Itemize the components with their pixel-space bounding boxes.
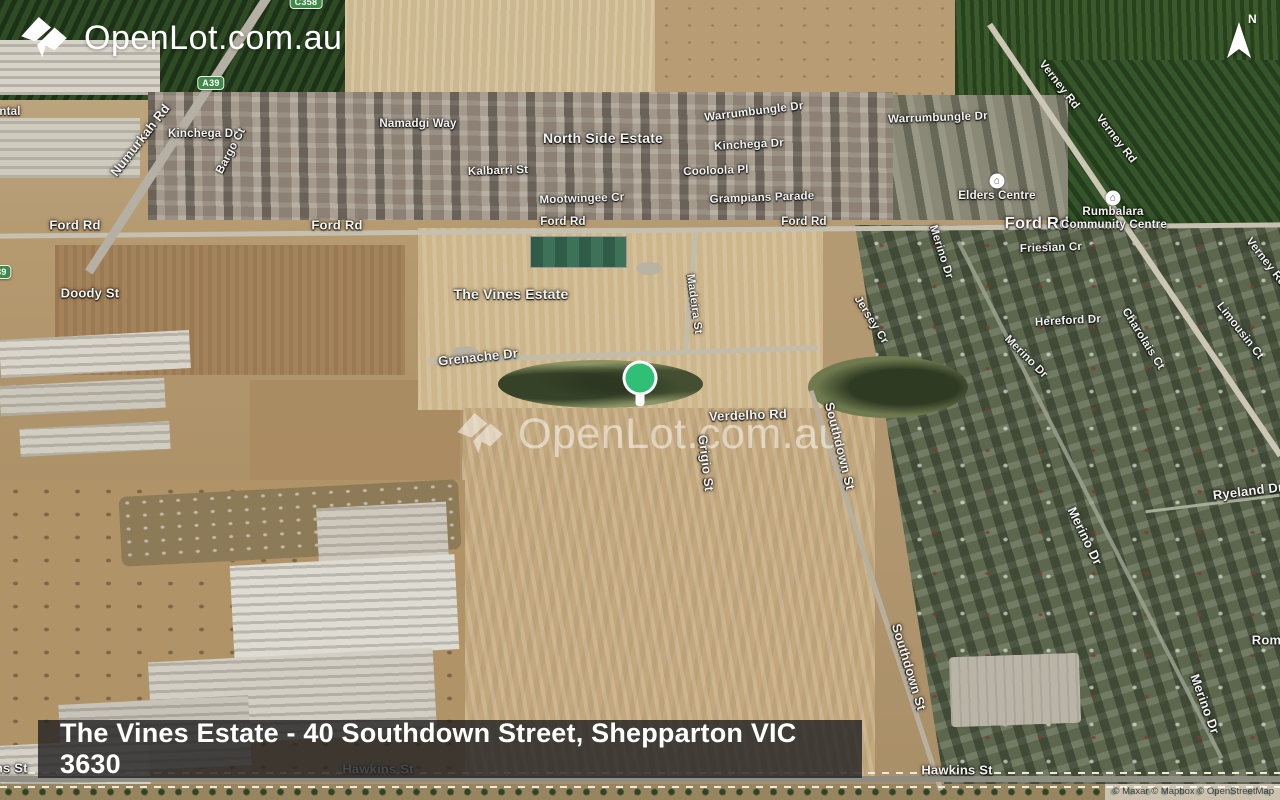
watermark-text: OpenLot.com.au <box>518 410 843 459</box>
tennis-courts <box>530 236 627 268</box>
address-title-bar: The Vines Estate - 40 Southdown Street, … <box>38 720 862 778</box>
map-label: Verdelho Rd <box>709 406 788 424</box>
map-label: Ford Rd <box>781 216 826 228</box>
openlot-logo-text: OpenLot.com.au <box>84 19 342 58</box>
tree-row <box>0 786 1280 800</box>
building-icon: ⌂ <box>990 174 1005 189</box>
map-label: Community Centre <box>1061 219 1167 231</box>
map-label: Hawkins St <box>0 761 28 776</box>
openlot-logo-icon <box>452 406 508 462</box>
location-pin[interactable] <box>618 356 662 410</box>
map-label: Elders Centre <box>958 190 1035 202</box>
address-title-text: The Vines Estate - 40 Southdown Street, … <box>60 718 862 780</box>
map-label: ntal <box>0 106 21 118</box>
map-label: The Vines Estate <box>454 286 569 302</box>
cul-de-sac <box>636 262 662 275</box>
carpark <box>949 653 1081 727</box>
map-label: Ford Rd <box>49 218 100 233</box>
map-label: Namadgi Way <box>379 118 456 130</box>
map-label: North Side Estate <box>543 130 663 146</box>
north-compass[interactable]: N <box>1222 12 1268 66</box>
map-label: Kalbarri St <box>468 164 529 178</box>
road-shield: A39 <box>0 265 12 279</box>
map-label: Kinchega Dr <box>168 128 238 140</box>
map-label: Ford Rd <box>540 216 585 228</box>
field-area <box>655 0 955 105</box>
map-label: Cooloola Pl <box>683 164 749 178</box>
pond <box>498 360 703 408</box>
road-dashes <box>0 786 1280 788</box>
openlot-logo-icon <box>16 10 72 66</box>
map-label: Rumbalara <box>1082 206 1143 218</box>
building-roof <box>230 554 460 661</box>
map-label: Ford Rd <box>1005 215 1070 234</box>
road-shield: C358 <box>290 0 323 9</box>
field-area <box>345 0 655 98</box>
map-label: Ford Rd <box>311 218 362 233</box>
north-arrow-icon <box>1224 20 1254 62</box>
map-label: Romney <box>1252 633 1280 648</box>
map-label: Doody St <box>61 286 120 301</box>
map-viewport: ntalNumurkah RdKinchega DrBargo CtNamadg… <box>0 0 1280 800</box>
building-icon: ⌂ <box>1106 191 1121 206</box>
road-shield: A39 <box>197 76 224 90</box>
map-label: Hawkins St <box>921 763 992 778</box>
attribution-text[interactable]: © Maxar © Mapbox © OpenStreetMap <box>1113 786 1274 797</box>
openlot-logo: OpenLot.com.au <box>16 10 342 66</box>
map-attribution[interactable]: © Maxar © Mapbox © OpenStreetMap <box>1105 784 1280 800</box>
map-label: Friesian Cr <box>1020 241 1083 255</box>
